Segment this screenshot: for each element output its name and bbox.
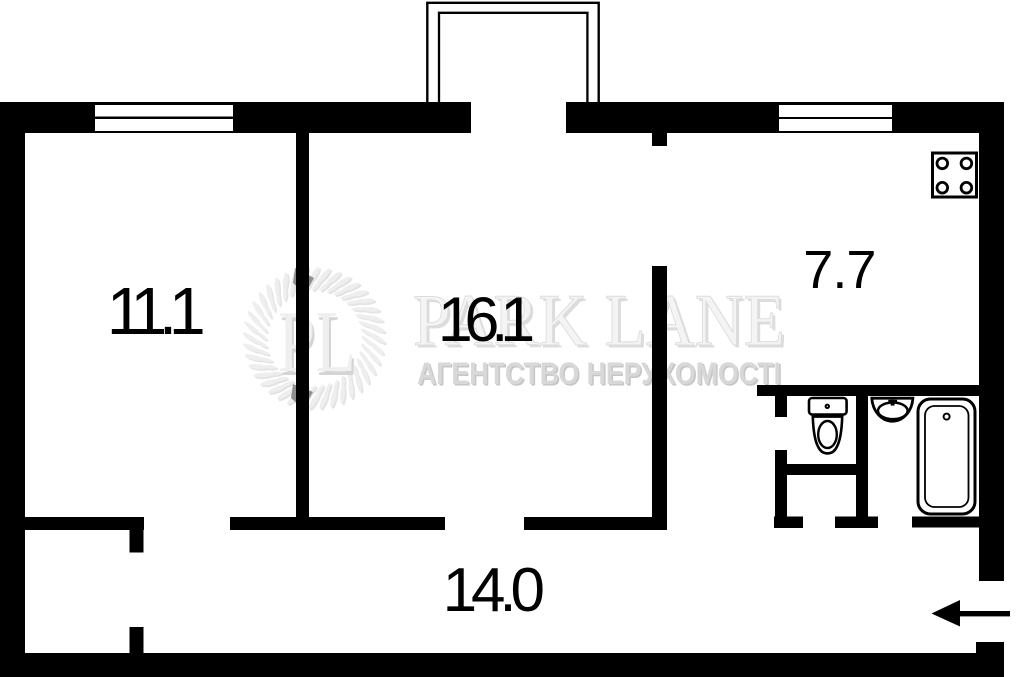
svg-text:PL: PL — [278, 294, 356, 391]
svg-text:11.1: 11.1 — [107, 275, 203, 349]
svg-text:14.0: 14.0 — [443, 556, 544, 625]
svg-text:7.7: 7.7 — [803, 240, 875, 300]
svg-text:АГЕНТСТВО НЕРУХОМОСТІ: АГЕНТСТВО НЕРУХОМОСТІ — [417, 355, 781, 391]
svg-text:16.1: 16.1 — [438, 285, 532, 355]
